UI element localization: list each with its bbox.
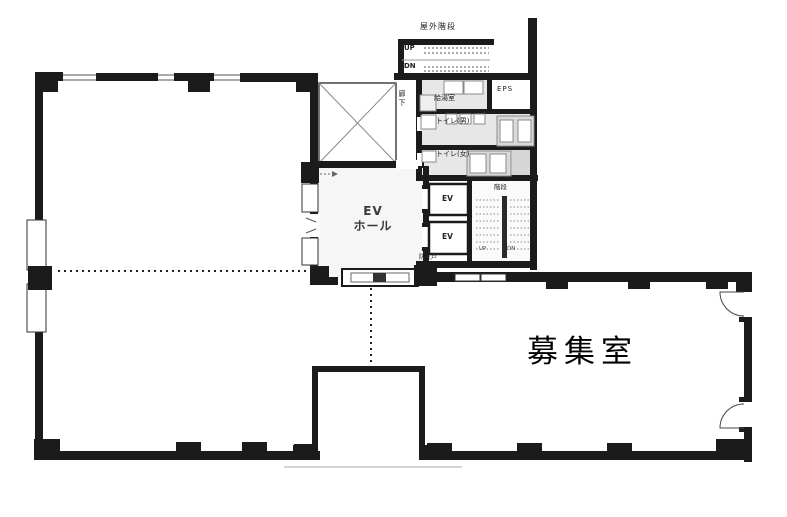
- void-shaft: [319, 83, 396, 163]
- corridor-label: 廊下: [398, 90, 405, 108]
- womens-toilet-label: トイレ(女): [436, 151, 469, 158]
- eps-label: EPS: [497, 86, 513, 93]
- inner-up-label: UP: [479, 247, 486, 253]
- kitchenette-label: 給湯室: [434, 95, 455, 102]
- ev-hall-label-line1: EV: [340, 205, 406, 217]
- dn-label: DN: [404, 63, 416, 70]
- elevator-2-label: EV: [442, 233, 453, 241]
- ev-hall-label: EV ホール: [340, 205, 406, 232]
- entrance-frame: [342, 269, 418, 286]
- inner-stairs-label: 階段: [494, 184, 507, 191]
- up-label: UP: [404, 45, 415, 52]
- elevator-1-label: EV: [442, 195, 453, 203]
- fire-door-label: 防火戸: [419, 255, 437, 261]
- vacant-room-label: 募集室: [527, 337, 638, 368]
- mens-toilet-label: トイレ(男): [436, 118, 469, 125]
- inner-dn-label: DN: [507, 247, 515, 253]
- door-swings: [720, 292, 744, 428]
- floor-plan: 屋外階段 UP DN 廊下 給湯室 EPS トイレ(男) トイレ(女) 階段 E…: [0, 0, 787, 517]
- lease-boundary-dotted: [58, 271, 371, 365]
- floor-plan-drawing: [0, 0, 787, 517]
- outdoor-stairs-label: 屋外階段: [420, 23, 456, 31]
- ev-hall-label-line2: ホール: [340, 220, 406, 232]
